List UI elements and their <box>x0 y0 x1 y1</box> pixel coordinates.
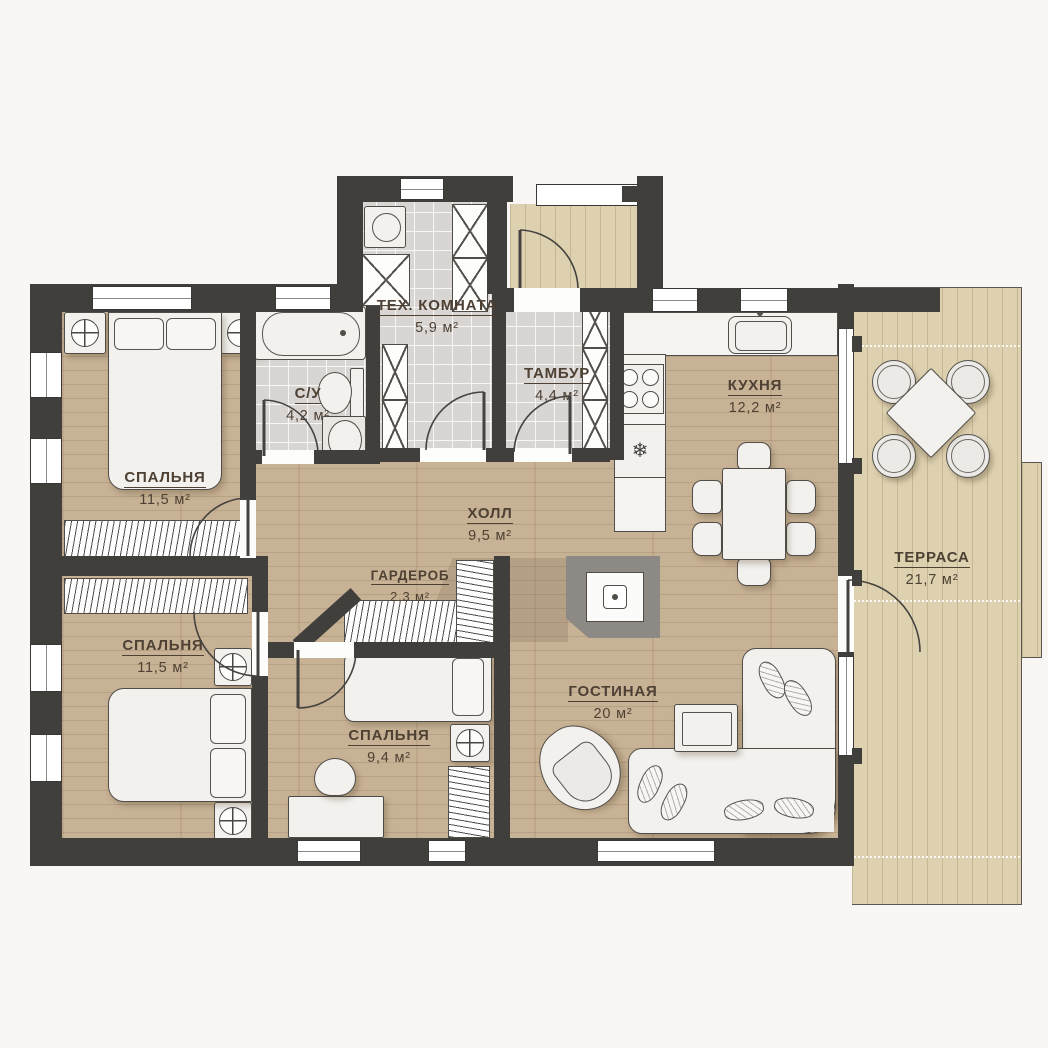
pillow <box>210 694 246 744</box>
window <box>30 644 62 692</box>
stove-burner <box>642 391 659 408</box>
door-opening-tech-room <box>420 448 486 462</box>
window <box>30 734 62 782</box>
door-opening-bedroom1 <box>240 500 256 558</box>
terrace-chair <box>946 434 990 478</box>
dining-chair <box>692 522 722 556</box>
door-opening-bedroom2 <box>252 612 268 676</box>
room-name: ТАМБУР <box>524 365 590 384</box>
room-label-bedroom-2: СПАЛЬНЯ 11,5 м² <box>98 636 228 677</box>
door-opening-terrace <box>838 576 854 652</box>
pillow <box>114 318 164 350</box>
room-area: 12,2 м² <box>695 399 815 417</box>
room-name: ГАРДЕРОБ <box>371 568 450 585</box>
room-label-tambour: ТАМБУР 4,4 м² <box>497 364 617 405</box>
room-label-bathroom: С/У 4,2 м² <box>256 384 360 425</box>
floor-terrace-extension <box>1022 462 1042 658</box>
window <box>652 288 698 312</box>
window <box>428 840 466 862</box>
terrace-plank-joint <box>854 856 1020 858</box>
room-area: 9,4 м² <box>324 749 454 767</box>
bathtub-drain <box>340 330 346 336</box>
pillow <box>166 318 216 350</box>
room-label-kitchen: КУХНЯ 12,2 м² <box>695 376 815 417</box>
stove-icon <box>603 585 627 609</box>
room-area: 9,5 м² <box>430 527 550 545</box>
room-label-bedroom-1: СПАЛЬНЯ 11,5 м² <box>90 468 240 509</box>
dining-chair <box>737 442 771 470</box>
lamp-icon <box>71 319 99 347</box>
window <box>838 656 854 756</box>
room-area: 11,5 м² <box>98 659 228 677</box>
storage-cabinet <box>582 400 608 452</box>
window <box>597 840 715 862</box>
storage-cabinet <box>382 344 408 400</box>
pillow <box>210 748 246 798</box>
wardrobe-closet <box>64 520 248 558</box>
window <box>275 286 331 310</box>
dining-chair <box>737 558 771 586</box>
window <box>400 178 444 200</box>
room-name: СПАЛЬНЯ <box>122 637 203 656</box>
terrace-post <box>852 336 862 352</box>
room-name: ТЕРРАСА <box>894 549 969 568</box>
wardrobe-closet <box>448 766 490 838</box>
terrace-post <box>852 748 862 764</box>
storage-cabinet <box>452 204 488 258</box>
room-label-terrace: ТЕРРАСА 21,7 м² <box>872 548 992 589</box>
room-name: СПАЛЬНЯ <box>348 727 429 746</box>
wall-porch-right <box>637 176 663 294</box>
room-label-hall: ХОЛЛ 9,5 м² <box>430 504 550 545</box>
terrace-chair <box>872 434 916 478</box>
kitchen-counter <box>614 312 838 356</box>
room-label-tech-room: ТЕХ. КОМНАТА 5,9 м² <box>372 296 502 337</box>
window <box>92 286 192 310</box>
window <box>297 840 361 862</box>
room-area: 11,5 м² <box>90 491 240 509</box>
desk <box>288 796 384 838</box>
dining-table <box>722 468 786 560</box>
window <box>740 288 788 312</box>
coffee-table-top <box>682 712 732 746</box>
wall-bedrooms-divider <box>62 556 252 576</box>
room-label-living-room: ГОСТИНАЯ 20 м² <box>548 682 678 723</box>
dining-chair <box>786 522 816 556</box>
door-opening-bedroom3 <box>294 642 354 658</box>
terrace-post <box>852 458 862 474</box>
room-name: С/У <box>295 385 322 404</box>
room-label-bedroom-3: СПАЛЬНЯ 9,4 м² <box>324 726 454 767</box>
wall-bedroom3-right <box>494 556 510 844</box>
snowflake-icon: ❄ <box>632 441 649 461</box>
kitchen-sink-basin <box>735 321 787 351</box>
wardrobe-closet <box>64 578 248 614</box>
window <box>30 438 62 484</box>
room-area: 21,7 м² <box>872 571 992 589</box>
room-area: 20 м² <box>548 705 678 723</box>
pillow <box>452 658 484 716</box>
room-area: 4,2 м² <box>256 407 360 425</box>
room-area: 5,9 м² <box>372 319 502 337</box>
lamp-icon <box>219 807 247 835</box>
window <box>30 352 62 398</box>
room-name: КУХНЯ <box>728 377 782 396</box>
room-name: СПАЛЬНЯ <box>124 469 205 488</box>
stove-burner <box>642 369 659 386</box>
room-name: ХОЛЛ <box>467 505 512 524</box>
floor-porch-deck <box>510 204 640 294</box>
door-opening-entrance <box>514 288 580 312</box>
terrace-post <box>852 570 862 586</box>
wall-bedroom2-right <box>252 556 268 844</box>
washing-machine-drum <box>372 213 401 242</box>
terrace-plank-joint <box>854 600 1020 602</box>
sofa-corner-patch <box>744 752 834 832</box>
room-name: ТЕХ. КОМНАТА <box>377 297 497 316</box>
room-label-wardrobe: ГАРДЕРОБ 2,3 м² <box>346 566 474 605</box>
porch-post <box>622 186 638 202</box>
room-area: 2,3 м² <box>346 589 474 605</box>
room-name: ГОСТИНАЯ <box>568 683 657 702</box>
wall-tech-porch-divider <box>487 176 507 294</box>
dining-chair <box>786 480 816 514</box>
armchair-seat <box>549 738 621 811</box>
dining-chair <box>692 480 722 514</box>
lamp-icon <box>456 729 484 757</box>
terrace-plank-joint <box>854 345 1020 347</box>
door-opening-tambour <box>514 448 572 462</box>
room-area: 4,4 м² <box>497 387 617 405</box>
door-opening-bathroom <box>262 450 314 464</box>
floor-plan-canvas: ❄ <box>0 0 1048 1048</box>
